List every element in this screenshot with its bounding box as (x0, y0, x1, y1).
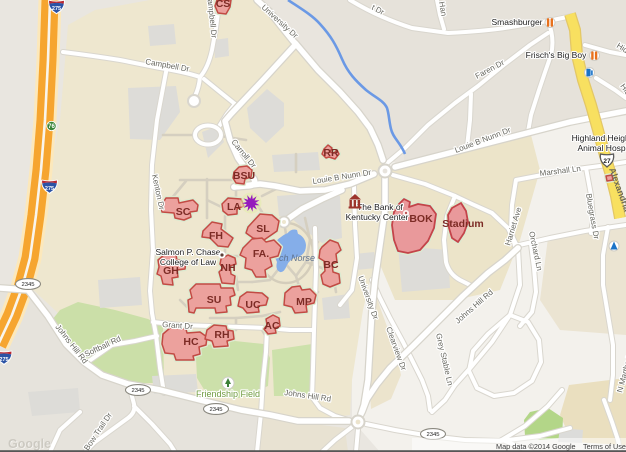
svg-text:2345: 2345 (209, 407, 223, 413)
svg-text:Google: Google (8, 437, 51, 451)
svg-text:MP: MP (296, 296, 312, 308)
svg-text:275: 275 (52, 6, 61, 12)
svg-text:BSU: BSU (233, 170, 255, 182)
svg-text:HC: HC (183, 336, 199, 348)
svg-text:Frisch's Big Boy: Frisch's Big Boy (526, 50, 587, 60)
svg-text:SU: SU (207, 294, 222, 306)
svg-text:LA: LA (227, 201, 241, 213)
svg-text:FA.: FA. (253, 248, 269, 260)
svg-text:RH: RH (214, 329, 229, 341)
svg-text:275: 275 (0, 357, 9, 363)
svg-text:Stadium: Stadium (442, 218, 483, 230)
svg-text:Highland Heights: Highland Heights (572, 133, 626, 143)
svg-text:27: 27 (603, 158, 611, 165)
svg-text:BOK: BOK (409, 213, 433, 225)
svg-text:SL: SL (256, 223, 270, 235)
svg-text:FH: FH (209, 230, 223, 242)
svg-text:Animal Hospital: Animal Hospital (577, 143, 626, 153)
svg-text:Kentucky Center: Kentucky Center (346, 212, 409, 222)
svg-text:CS: CS (216, 0, 231, 10)
svg-text:Salmon P. Chase: Salmon P. Chase (155, 247, 220, 257)
svg-text:2345: 2345 (21, 282, 35, 288)
svg-text:The Bank of: The Bank of (357, 202, 403, 212)
svg-text:2345: 2345 (131, 388, 145, 394)
svg-text:ch Norse: ch Norse (279, 253, 315, 263)
svg-text:BC: BC (323, 259, 339, 271)
svg-text:Terms of Use: Terms of Use (583, 442, 626, 451)
svg-text:Smashburger: Smashburger (491, 17, 542, 27)
svg-text:275: 275 (45, 186, 54, 192)
svg-text:SC: SC (176, 206, 191, 218)
svg-text:UC: UC (245, 299, 261, 311)
svg-text:2345: 2345 (426, 432, 440, 438)
svg-text:Map data ©2014 Google: Map data ©2014 Google (496, 442, 576, 451)
svg-text:RR: RR (323, 147, 339, 159)
svg-text:AC: AC (264, 320, 280, 332)
svg-text:College of Law: College of Law (160, 257, 217, 267)
svg-text:76: 76 (48, 124, 55, 130)
svg-text:Friendship Field: Friendship Field (196, 389, 260, 399)
svg-text:NH: NH (220, 262, 235, 274)
